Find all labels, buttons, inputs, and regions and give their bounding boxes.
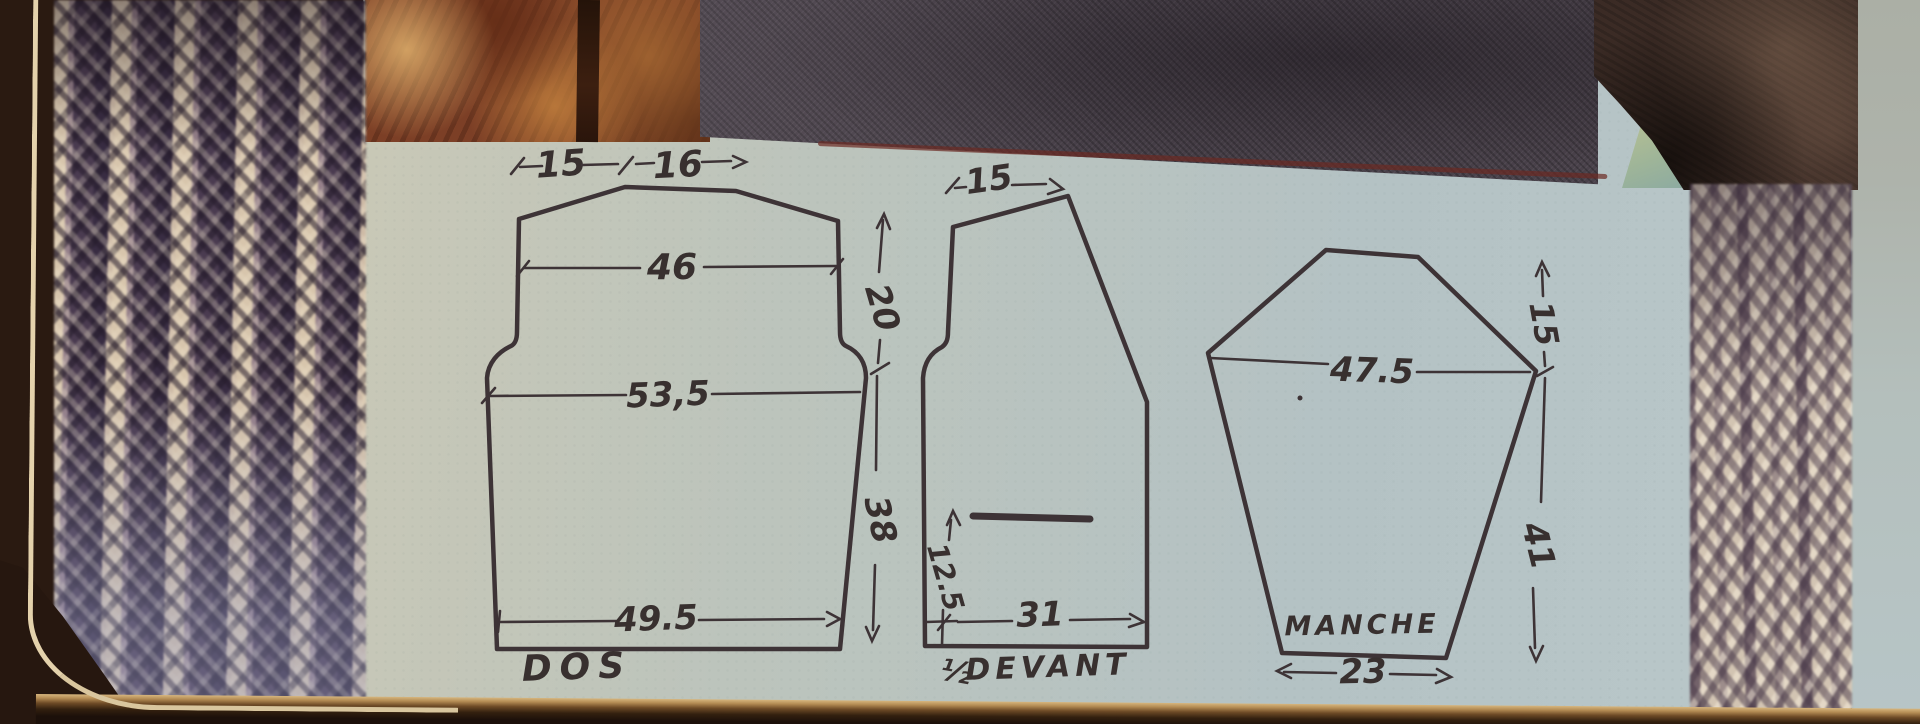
devant-piece: 15 12.5 31 ½ DEVANT	[920, 157, 1147, 693]
devant-dim-hem-value: 31	[1016, 594, 1065, 636]
devant-dim-shoulder-value: 15	[963, 157, 1015, 203]
knitting-pattern-schematic: 15 16 46 53,5	[0, 0, 1920, 724]
dos-dim-hem-value: 49.5	[612, 598, 698, 641]
dos-dim-shoulder: 15	[535, 142, 588, 186]
manche-dim-cap-value: 15	[1521, 299, 1566, 349]
devant-dim-lower-edge-value: 12.5	[920, 539, 971, 615]
devant-dim-hem: 31	[958, 594, 1144, 636]
dos-dim-chest: 53,5	[482, 374, 860, 417]
devant-dim-lower-edge: 12.5	[920, 511, 971, 645]
dos-dim-length: 38	[855, 492, 904, 547]
dos-dim-chest-value: 53,5	[625, 374, 710, 417]
devant-dim-shoulder: 15	[946, 157, 1063, 203]
devant-piece-label: DEVANT	[965, 647, 1131, 688]
manche-piece-outline	[1208, 250, 1536, 658]
manche-dim-width-value: 47.5	[1328, 350, 1414, 393]
dos-dim-neck: 16	[652, 144, 704, 188]
dos-dim-upper-back: 46	[517, 247, 843, 288]
devant-pocket-line	[973, 516, 1090, 519]
manche-dim-underarm-value: 41	[1513, 517, 1564, 574]
manche-piece-label: MANCHE	[1284, 609, 1440, 643]
dos-piece: 15 16 46 53,5	[482, 142, 866, 690]
dos-dim-upper-back-value: 46	[646, 247, 697, 288]
manche-dim-width: 47.5	[1210, 350, 1530, 401]
dos-dim-hem: 49.5	[498, 598, 840, 641]
manche-dim-cuff-value: 23	[1339, 652, 1387, 693]
manche-dim-cap: 15	[1521, 262, 1566, 376]
dos-dim-armhole-depth: 20	[856, 279, 907, 336]
ink-speck	[1298, 396, 1303, 401]
dos-dim-shoulder-neck: 15 16	[511, 142, 746, 187]
dos-piece-label: DOS	[521, 645, 633, 690]
magazine-scan-page: 15 16 46 53,5	[0, 0, 1920, 724]
manche-piece: 47.5 15 41	[1208, 250, 1567, 692]
